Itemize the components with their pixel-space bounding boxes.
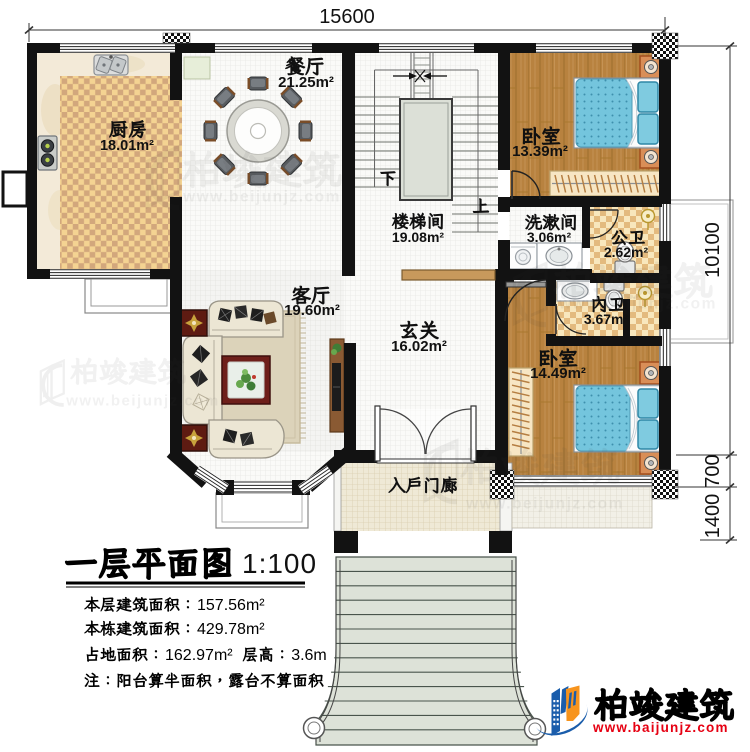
- svg-text:3.67m²: 3.67m²: [584, 311, 629, 327]
- svg-text:3.06m²: 3.06m²: [527, 229, 572, 245]
- svg-text:19.08m²: 19.08m²: [392, 229, 444, 245]
- svg-text:15600: 15600: [319, 6, 375, 28]
- svg-text:157.56m²: 157.56m²: [197, 597, 265, 614]
- svg-text:www.beijunjz.com: www.beijunjz.com: [182, 189, 341, 206]
- svg-text:2.62m²: 2.62m²: [604, 244, 649, 260]
- svg-text:www.beijunjz.com: www.beijunjz.com: [465, 496, 624, 513]
- svg-text:13.39m²: 13.39m²: [512, 143, 568, 160]
- svg-text:1:100: 1:100: [242, 548, 317, 579]
- svg-text:19.60m²: 19.60m²: [284, 302, 340, 319]
- svg-text:1400: 1400: [702, 494, 724, 539]
- svg-text:www.beijunjz.com: www.beijunjz.com: [65, 392, 219, 409]
- svg-text:16.02m²: 16.02m²: [391, 338, 447, 355]
- svg-text:14.49m²: 14.49m²: [530, 365, 586, 382]
- svg-text:18.01m²: 18.01m²: [100, 138, 154, 154]
- svg-text:162.97m²: 162.97m²: [165, 647, 233, 664]
- svg-text:www.baijunjz.com: www.baijunjz.com: [592, 720, 729, 735]
- svg-text:21.25m²: 21.25m²: [278, 74, 334, 91]
- svg-text:429.78m²: 429.78m²: [197, 621, 265, 638]
- svg-text:700: 700: [702, 454, 724, 487]
- svg-text:www.beijunjz.com: www.beijunjz.com: [558, 296, 717, 313]
- svg-text:3.6m: 3.6m: [291, 647, 327, 664]
